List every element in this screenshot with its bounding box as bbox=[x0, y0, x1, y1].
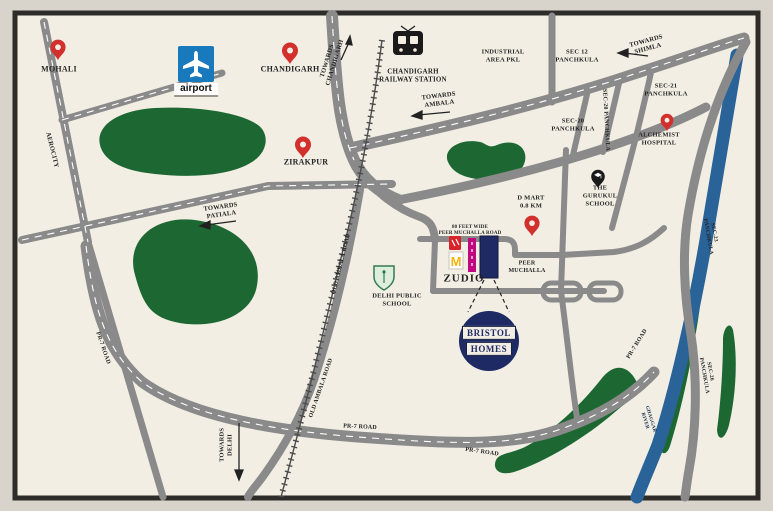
alchemist-hospital-label: ALCHEMIST HOSPITAL bbox=[637, 131, 681, 146]
delhi-public-school-label: DELHI PUBLIC SCHOOL bbox=[371, 292, 423, 307]
gurukul-school-label: THE GURUKUL SCHOOL bbox=[575, 184, 626, 207]
peer-muchalla-road-label: 80 FEET WIDE PEER MUCHALLA ROAD bbox=[439, 224, 502, 236]
road-zudio-west bbox=[433, 240, 435, 291]
svg-text:M: M bbox=[451, 254, 462, 269]
mohali-label: MOHALI bbox=[41, 65, 77, 74]
sec-12-label: SEC 12 PANCHKULA bbox=[555, 48, 599, 63]
peer-muchalla-label: PEER MUCHALLA bbox=[508, 260, 545, 274]
green-park-top-left bbox=[99, 108, 265, 176]
bristol-homes-line1: BRISTOL bbox=[462, 326, 516, 340]
location-map: M bbox=[0, 0, 773, 511]
bristol-homes-line2: HOMES bbox=[466, 342, 513, 356]
airport-label: airport bbox=[174, 83, 218, 97]
bristol-homes-label: BRISTOL HOMES bbox=[462, 326, 516, 356]
airport-icon bbox=[178, 46, 214, 82]
zirakpur-label: ZIRAKPUR bbox=[284, 158, 329, 167]
zudio-label: ZUDIO bbox=[443, 273, 484, 286]
railway-station-label: CHANDIGARH RAILWAY STATION bbox=[378, 68, 448, 85]
sec-20-label: SEC-20 PANCHKULA bbox=[551, 117, 595, 132]
sec-21-label: SEC-21 PANCHKULA bbox=[644, 82, 688, 97]
dmart-label: D MART 0.8 KM bbox=[516, 194, 546, 209]
peer-muchalla-road-line2: PEER MUCHALLA ROAD bbox=[439, 230, 502, 236]
kfc-sign-icon bbox=[449, 236, 461, 250]
industrial-area-label: INDUSTRIAL AREA PKL bbox=[480, 48, 527, 63]
towards-delhi-label: TOWARDS DELHI bbox=[218, 428, 233, 462]
chandigarh-label: CHANDIGARH bbox=[261, 65, 320, 74]
